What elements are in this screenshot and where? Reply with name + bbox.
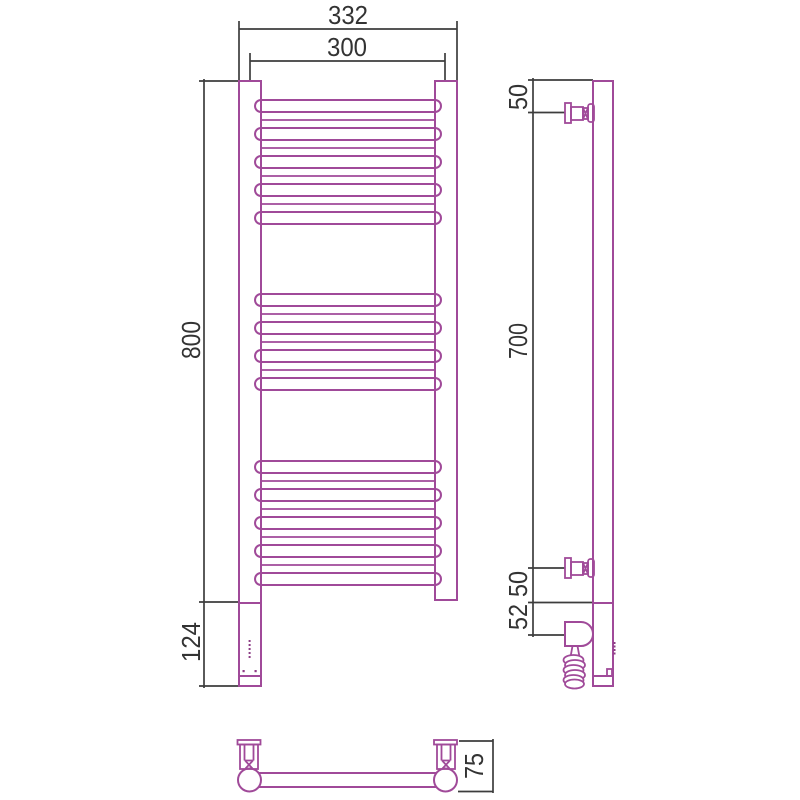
rung [255, 100, 441, 112]
bottom-view-right-bracket [434, 740, 457, 769]
rung [255, 461, 441, 473]
rung [255, 294, 441, 306]
rung [255, 212, 441, 224]
drawing-canvas: 332 300 800 124 [0, 0, 800, 800]
dim-label-heater-section: 124 [176, 622, 206, 662]
dim-label-center-spacing: 300 [327, 32, 367, 62]
front-dimension-lines [199, 21, 457, 688]
top-bracket [565, 103, 594, 123]
side-view: 50 700 50 52 [503, 78, 616, 689]
right-tube-section [434, 769, 457, 792]
dim-label-top-offset: 50 [503, 84, 533, 110]
rung [255, 184, 441, 196]
back-tubes [261, 120, 435, 565]
right-rail [435, 81, 457, 600]
rung [255, 156, 441, 168]
rung-bar [249, 773, 446, 787]
indicator-dots [243, 640, 257, 672]
bottom-view-left-bracket [238, 740, 261, 769]
bottom-view: 75 [238, 739, 494, 793]
dim-label-overall-height: 800 [176, 321, 206, 359]
front-view: 332 300 800 124 [176, 0, 457, 688]
dim-label-heater-extension: 52 [503, 604, 533, 630]
left-rail [239, 81, 261, 686]
rung [255, 545, 441, 557]
heater-housing [565, 622, 593, 657]
rung [255, 573, 441, 585]
rung [255, 489, 441, 501]
rung [255, 378, 441, 390]
dim-label-wall-depth: 75 [459, 753, 489, 779]
dim-label-bottom-offset: 50 [503, 571, 533, 597]
bottom-bracket [565, 558, 594, 578]
dim-label-overall-width: 332 [328, 0, 368, 30]
rung [255, 128, 441, 140]
rung [255, 322, 441, 334]
technical-drawing-towel-rail: 332 300 800 124 [0, 0, 800, 800]
power-cable-coil [564, 655, 586, 689]
rung [255, 517, 441, 529]
rung [255, 350, 441, 362]
rail-profile [593, 81, 616, 686]
dim-label-bracket-spacing: 700 [503, 323, 533, 359]
left-tube-section [238, 769, 261, 792]
side-dimension-lines [528, 78, 593, 637]
